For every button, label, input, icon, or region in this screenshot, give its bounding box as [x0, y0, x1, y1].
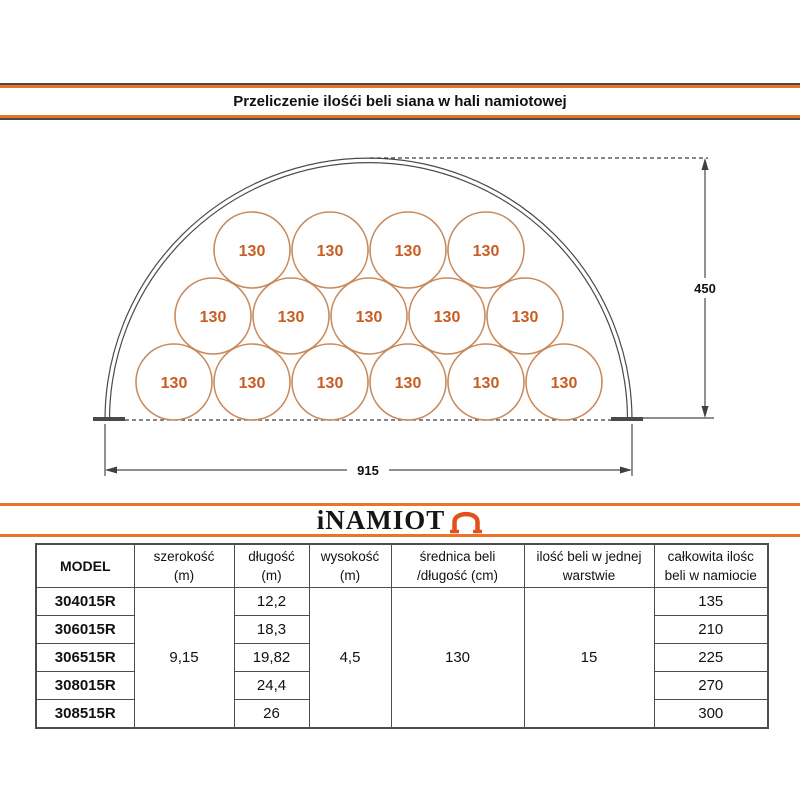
- model-cell: 306515R: [36, 644, 134, 672]
- col-header-wysokosc: wysokość (m): [309, 544, 391, 588]
- hay-bale: 130: [214, 344, 290, 420]
- calkowita-cell: 300: [654, 700, 768, 729]
- dlugosc-cell: 12,2: [234, 588, 309, 616]
- calkowita-cell: 270: [654, 672, 768, 700]
- hay-bale: 130: [253, 278, 329, 354]
- svg-text:130: 130: [317, 243, 344, 260]
- dlugosc-cell: 24,4: [234, 672, 309, 700]
- svg-text:130: 130: [278, 309, 305, 326]
- hay-bale: 130: [409, 278, 485, 354]
- svg-text:130: 130: [434, 309, 461, 326]
- left-footing: [93, 417, 125, 421]
- table-header-row: MODEL szerokość (m) długość (m) wysokość…: [36, 544, 768, 588]
- ilosc-warstwa-cell: 15: [524, 588, 654, 729]
- svg-text:130: 130: [395, 243, 422, 260]
- svg-text:130: 130: [512, 309, 539, 326]
- hay-bale: 130: [136, 344, 212, 420]
- tent-arch-icon: [449, 507, 483, 534]
- srednica-cell: 130: [391, 588, 524, 729]
- spec-table: MODEL szerokość (m) długość (m) wysokość…: [35, 543, 769, 729]
- hay-bale: 130: [292, 344, 368, 420]
- svg-text:130: 130: [473, 375, 500, 392]
- col-header-model: MODEL: [36, 544, 134, 588]
- page-title: Przeliczenie ilośći beli siana w hali na…: [0, 88, 800, 115]
- svg-text:130: 130: [356, 309, 383, 326]
- svg-text:130: 130: [473, 243, 500, 260]
- svg-text:130: 130: [395, 375, 422, 392]
- svg-text:130: 130: [161, 375, 188, 392]
- hay-bale: 130: [487, 278, 563, 354]
- model-cell: 308015R: [36, 672, 134, 700]
- hay-bale: 130: [448, 344, 524, 420]
- height-dimension: 450: [686, 158, 724, 418]
- hay-bale: 130: [370, 344, 446, 420]
- col-header-ilosc-warstwa: ilość beli w jednej warstwie: [524, 544, 654, 588]
- hay-bale: 130: [526, 344, 602, 420]
- hay-bale: 130: [448, 212, 524, 288]
- dlugosc-cell: 26: [234, 700, 309, 729]
- brand-logo-text: iNAMIOT: [317, 506, 446, 534]
- svg-text:130: 130: [551, 375, 578, 392]
- width-dimension-label: 915: [357, 463, 379, 478]
- right-footing: [611, 417, 643, 421]
- calkowita-cell: 135: [654, 588, 768, 616]
- svg-text:130: 130: [239, 375, 266, 392]
- model-cell: 304015R: [36, 588, 134, 616]
- model-cell: 306015R: [36, 616, 134, 644]
- width-dimension: 915: [105, 424, 632, 479]
- title-band: Przeliczenie ilośći beli siana w hali na…: [0, 83, 800, 120]
- hay-bale: 130: [292, 212, 368, 288]
- col-header-srednica: średnica beli /długość (cm): [391, 544, 524, 588]
- height-dimension-label: 450: [694, 281, 716, 296]
- svg-text:130: 130: [239, 243, 266, 260]
- logo-band: iNAMIOT: [0, 503, 800, 537]
- wysokosc-cell: 4,5: [309, 588, 391, 729]
- hay-bale: 130: [175, 278, 251, 354]
- col-header-calkowita: całkowita ilośc beli w namiocie: [654, 544, 768, 588]
- table-row: 304015R 9,15 12,2 4,5 130 15 135: [36, 588, 768, 616]
- tent-cross-section-diagram: 130 130 130 130 130 130 130 130 130 130 …: [0, 120, 800, 500]
- col-header-szerokosc: szerokość (m): [134, 544, 234, 588]
- hay-bale: 130: [370, 212, 446, 288]
- model-cell: 308515R: [36, 700, 134, 729]
- svg-text:130: 130: [317, 375, 344, 392]
- calkowita-cell: 210: [654, 616, 768, 644]
- hay-bale: 130: [331, 278, 407, 354]
- szerokosc-cell: 9,15: [134, 588, 234, 729]
- hay-bale: 130: [214, 212, 290, 288]
- svg-text:130: 130: [200, 309, 227, 326]
- calkowita-cell: 225: [654, 644, 768, 672]
- dlugosc-cell: 18,3: [234, 616, 309, 644]
- dlugosc-cell: 19,82: [234, 644, 309, 672]
- col-header-dlugosc: długość (m): [234, 544, 309, 588]
